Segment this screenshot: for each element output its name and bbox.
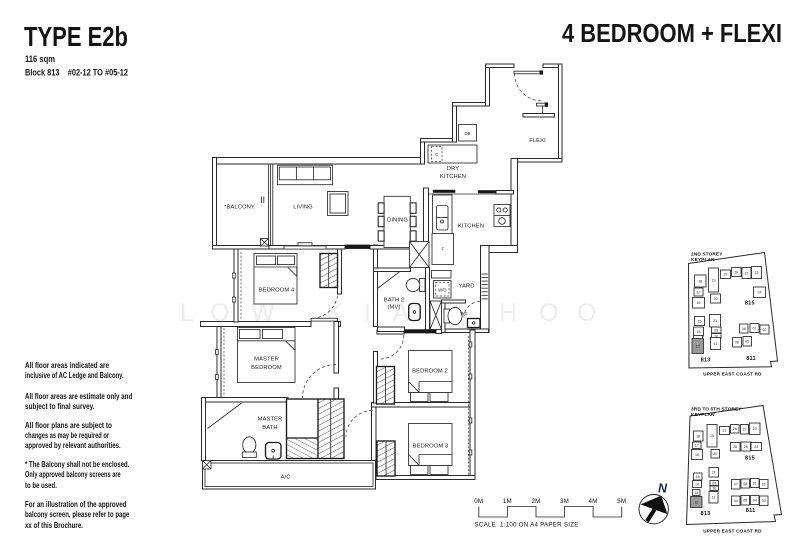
svg-text:815: 815: [745, 301, 755, 307]
svg-text:subject to final survey.: subject to final survey.: [25, 401, 95, 411]
svg-text:23: 23: [755, 271, 759, 275]
svg-text:BEDROOM 4: BEDROOM 4: [259, 287, 295, 293]
svg-text:815: 815: [745, 456, 755, 462]
svg-text:Only approved balcony screens: Only approved balcony screens are: [25, 469, 121, 479]
svg-text:to be used.: to be used.: [25, 480, 57, 490]
svg-text:3RD TO 5TH STOREY: 3RD TO 5TH STOREY: [691, 407, 742, 413]
svg-text:(MV): (MV): [388, 305, 401, 311]
svg-text:10: 10: [712, 487, 716, 491]
svg-text:06: 06: [735, 341, 739, 345]
svg-text:KITCHEN: KITCHEN: [458, 224, 484, 230]
svg-text:All floor areas are estimate o: All floor areas are estimate only and: [25, 391, 132, 401]
svg-text:15: 15: [698, 319, 702, 323]
svg-text:27: 27: [724, 273, 728, 277]
svg-text:27: 27: [723, 429, 727, 433]
svg-text:MASTER: MASTER: [254, 357, 279, 363]
svg-text:19: 19: [712, 278, 716, 282]
svg-text:28: 28: [733, 427, 737, 431]
svg-text:C: C: [435, 152, 438, 157]
svg-text:xx of this Brochure.: xx of this Brochure.: [25, 520, 83, 530]
svg-text:12: 12: [694, 500, 698, 504]
svg-text:YARD: YARD: [458, 284, 474, 290]
svg-text:24: 24: [754, 445, 758, 449]
svg-text:16: 16: [695, 453, 699, 457]
svg-text:2M: 2M: [531, 498, 540, 505]
svg-text:01: 01: [753, 326, 757, 330]
svg-text:BEDROOM 3: BEDROOM 3: [413, 444, 449, 450]
svg-text:14: 14: [695, 482, 699, 486]
svg-text:N: N: [658, 482, 668, 496]
svg-text:05: 05: [745, 340, 749, 344]
svg-text:* The Balcony shall not be enc: * The Balcony shall not be enclosed.: [25, 459, 129, 469]
svg-text:2ND STOREY: 2ND STOREY: [691, 252, 723, 258]
svg-text:O: O: [539, 299, 558, 327]
svg-text:811: 811: [746, 508, 756, 514]
svg-text:O: O: [577, 299, 596, 327]
svg-text:BEDROOM 2: BEDROOM 2: [412, 369, 448, 375]
svg-text:08: 08: [742, 327, 746, 331]
svg-text:1M: 1M: [503, 498, 512, 505]
svg-text:W/D: W/D: [438, 287, 446, 292]
svg-text:F: F: [441, 247, 444, 252]
svg-text:15: 15: [696, 475, 700, 479]
svg-text:22: 22: [745, 271, 749, 275]
svg-text:5M: 5M: [617, 498, 626, 505]
svg-text:13: 13: [694, 491, 698, 495]
svg-text:WC: WC: [460, 311, 467, 316]
svg-text:24: 24: [758, 291, 762, 295]
svg-text:20: 20: [713, 452, 717, 456]
svg-text:813: 813: [701, 358, 711, 364]
svg-text:FLEXI: FLEXI: [529, 138, 546, 144]
svg-text:813: 813: [701, 511, 711, 517]
svg-text:21: 21: [713, 319, 717, 323]
svg-text:DINING: DINING: [387, 218, 408, 224]
svg-text:For an illustration of the app: For an illustration of the approved: [25, 499, 127, 509]
svg-text:18: 18: [698, 279, 702, 283]
svg-text:All floor plans are subject to: All floor plans are subject to: [25, 420, 112, 430]
svg-text:changes as may be required or: changes as may be required or: [25, 430, 110, 440]
svg-text:H: H: [499, 299, 517, 327]
svg-text:14: 14: [697, 330, 701, 334]
svg-text:MASTER: MASTER: [258, 417, 283, 423]
svg-text:Block 813 #02-12 TO #05-12: Block 813 #02-12 TO #05-12: [25, 68, 128, 78]
svg-text:16: 16: [697, 301, 701, 305]
svg-text:25: 25: [744, 445, 748, 449]
svg-text:All floor areas indicated are: All floor areas indicated are: [25, 360, 109, 370]
svg-text:01: 01: [753, 481, 757, 485]
svg-text:balcony screen, please refer t: balcony screen, please refer to page: [25, 509, 130, 519]
svg-text:811: 811: [746, 356, 756, 362]
svg-text:BEDROOM: BEDROOM: [251, 365, 282, 371]
svg-text:KEYPLAN: KEYPLAN: [691, 257, 715, 263]
svg-text:UPPER EAST COAST RD: UPPER EAST COAST RD: [703, 372, 762, 377]
svg-text:09: 09: [712, 481, 716, 485]
svg-text:UPPER EAST COAST RD: UPPER EAST COAST RD: [703, 529, 762, 534]
svg-text:BATH: BATH: [262, 425, 277, 431]
svg-text:L: L: [180, 299, 194, 327]
svg-text:inclusive of AC Ledge and Balc: inclusive of AC Ledge and Balcony.: [25, 370, 124, 380]
svg-text:DRY: DRY: [447, 166, 459, 172]
svg-text:04: 04: [734, 499, 738, 503]
svg-text:0M: 0M: [474, 498, 483, 505]
svg-text:SCALE 1:100 ON A4 PAPER SIZE: SCALE 1:100 ON A4 PAPER SIZE: [475, 522, 579, 529]
svg-text:26: 26: [733, 445, 737, 449]
svg-text:17: 17: [695, 444, 699, 448]
svg-text:I: I: [364, 299, 371, 327]
svg-text:12: 12: [696, 344, 700, 348]
svg-text:4M: 4M: [589, 498, 598, 505]
svg-text:11: 11: [714, 342, 718, 346]
svg-text:approved by relevant authoriti: approved by relevant authorities.: [25, 440, 121, 450]
svg-text:07: 07: [734, 483, 738, 487]
svg-text:09: 09: [714, 328, 718, 332]
svg-text:28: 28: [734, 270, 738, 274]
svg-text:20: 20: [714, 297, 718, 301]
svg-text:05: 05: [743, 499, 747, 503]
svg-text:KEYPLAN: KEYPLAN: [691, 412, 715, 418]
svg-text:3M: 3M: [560, 498, 569, 505]
svg-text:*BALCONY: *BALCONY: [224, 205, 255, 211]
svg-text:21: 21: [712, 471, 716, 475]
svg-text:02: 02: [762, 482, 766, 486]
svg-text:08: 08: [743, 482, 747, 486]
svg-text:17: 17: [697, 290, 701, 294]
svg-text:DB: DB: [465, 131, 471, 136]
svg-text:23: 23: [753, 427, 757, 431]
svg-text:4 BEDROOM + FLEXI: 4 BEDROOM + FLEXI: [562, 18, 782, 48]
svg-text:BATH 2: BATH 2: [384, 298, 404, 304]
svg-text:LIVING: LIVING: [293, 205, 313, 211]
svg-text:11: 11: [712, 496, 716, 500]
svg-text:TYPE E2b: TYPE E2b: [24, 21, 128, 52]
svg-text:A/C: A/C: [281, 475, 291, 481]
svg-text:04: 04: [753, 498, 757, 502]
svg-text:19: 19: [710, 434, 714, 438]
svg-text:18: 18: [696, 434, 700, 438]
svg-text:22: 22: [743, 428, 747, 432]
svg-text:02: 02: [763, 328, 767, 332]
svg-text:KITCHEN: KITCHEN: [440, 174, 466, 180]
svg-text:03: 03: [762, 499, 766, 503]
svg-text:116 sqm: 116 sqm: [25, 54, 55, 64]
